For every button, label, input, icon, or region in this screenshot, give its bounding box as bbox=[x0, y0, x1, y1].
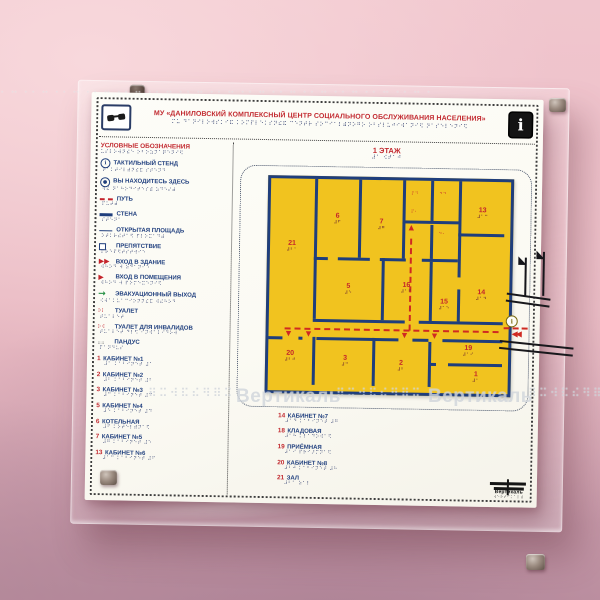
wall bbox=[448, 363, 502, 367]
plan-room-label: 5⠼⠑ bbox=[344, 283, 352, 296]
plan-room-label: 14⠼⠁⠙ bbox=[475, 289, 486, 302]
legend-label: ТАКТИЛЬНЫЙ СТЕНД bbox=[113, 160, 178, 168]
legend-braille: ⠞⠁⠅⠞⠊⠇⠾⠝⠮⠯ ⠎⠞⠑⠝⠙ bbox=[102, 168, 224, 176]
cell-braille-mark: ⠙⠂ bbox=[439, 233, 446, 238]
you-are-here-icon: ● bbox=[100, 177, 110, 187]
legend-braille: ⠪⠺⠁⠅⠥⠁⠉⠊⠕⠝⠝⠮⠯ ⠺⠮⠓⠕⠙ bbox=[100, 299, 222, 307]
floor-plan-region: 1 ЭТАЖ ⠼⠁ ⠪⠞⠁⠚ ▲ ▼ ▼ ▼ ▼ 21⠼⠃⠁20⠼⠃⠚6⠼⠋7⠼… bbox=[233, 143, 535, 500]
legend-item: ⠗⠇ТУАЛЕТ⠞⠥⠁⠇⠑⠞ bbox=[98, 308, 222, 323]
legend-braille: ⠎⠞⠑⠝⠁ bbox=[101, 218, 223, 226]
plan-room-label: 16⠼⠁⠋ bbox=[401, 282, 412, 295]
wall bbox=[358, 180, 362, 258]
plan-room-label: 13⠼⠁⠉ bbox=[477, 207, 488, 220]
room-number: 1 bbox=[97, 355, 101, 362]
obstacle-icon bbox=[99, 243, 113, 250]
wall bbox=[412, 339, 428, 342]
wall bbox=[419, 321, 503, 325]
wall bbox=[372, 338, 376, 386]
maker-logo-braille: ⠺⠑⠗⠞⠊⠅⠁⠇⠾ bbox=[483, 495, 535, 501]
legend-label: ПУТЬ bbox=[117, 196, 133, 203]
rooms-bottom-list: 14КАБИНЕТ №7⠼⠁⠙ ⠅⠁⠃⠊⠝⠑⠞ ⠼⠛18КЛАДОВАЯ⠼⠁⠓ … bbox=[277, 409, 490, 491]
room-number: 14 bbox=[278, 412, 285, 419]
plan-room-label: 15⠼⠁⠑ bbox=[438, 298, 449, 311]
plan-room-label: 19⠼⠁⠊ bbox=[463, 345, 474, 358]
route-arrow: ▼ bbox=[286, 330, 292, 337]
maker-logo: Вертикаль ⠺⠑⠗⠞⠊⠅⠁⠇⠾ bbox=[483, 479, 535, 501]
room-list-item: 1КАБИНЕТ №1⠼⠁ ⠅⠁⠃⠊⠝⠑⠞ ⠼⠁ bbox=[97, 355, 221, 370]
legend-braille: ⠞⠥⠁⠇⠑⠞ bbox=[100, 315, 222, 323]
standoff-screw bbox=[100, 470, 117, 485]
wall bbox=[429, 262, 433, 321]
legend-label: ВЫ НАХОДИТЕСЬ ЗДЕСЬ bbox=[113, 179, 189, 187]
legend-item: ОТКРЫТАЯ ПЛОЩАДЬ⠕⠞⠅⠗⠮⠞⠁⠫ ⠏⠇⠕⠭⠁⠙⠾ bbox=[99, 227, 223, 242]
wall bbox=[314, 257, 328, 260]
wall bbox=[313, 319, 405, 324]
floor-plan: ▲ ▼ ▼ ▼ ▼ 21⠼⠃⠁20⠼⠃⠚6⠼⠋7⠼⠛13⠼⠁⠉5⠼⠑16⠼⠁⠋1… bbox=[264, 175, 514, 397]
legend-item: iТАКТИЛЬНЫЙ СТЕНД⠞⠁⠅⠞⠊⠇⠾⠝⠮⠯ ⠎⠞⠑⠝⠙ bbox=[100, 158, 224, 176]
wall bbox=[381, 258, 385, 320]
standoff-screw bbox=[549, 98, 566, 112]
wall bbox=[298, 337, 302, 340]
legend-column: УСЛОВНЫЕ ОБОЗНАЧЕНИЯ ⠥⠎⠇⠕⠺⠝⠮⠑ ⠕⠃⠕⠵⠝⠁⠟⠑⠝⠊… bbox=[95, 142, 225, 465]
room-list-item: 19ПРИЁМНАЯ⠼⠁⠊ ⠏⠗⠊⠜⠍⠝⠁⠫ bbox=[277, 443, 489, 460]
room-list-item: 20КАБИНЕТ №8⠼⠃⠚ ⠅⠁⠃⠊⠝⠑⠞ ⠼⠓ bbox=[277, 459, 489, 476]
wall bbox=[316, 337, 398, 341]
room-list-item: 6КОТЕЛЬНАЯ⠼⠋ ⠅⠕⠞⠑⠇⠾⠝⠁⠫ bbox=[96, 418, 220, 433]
room-number: 7 bbox=[96, 434, 100, 441]
emergency-exit-icon: → bbox=[98, 290, 112, 299]
cell-braille-mark: ⠏⠂ bbox=[411, 210, 418, 215]
cell-braille-mark: ⠙⠙ bbox=[439, 193, 446, 198]
plan-room-label: 6⠼⠋ bbox=[334, 213, 342, 226]
signpost-icon bbox=[483, 479, 535, 496]
plan-room-label: 20⠼⠃⠚ bbox=[284, 350, 295, 363]
plan-room-label: 1⠼⠁ bbox=[472, 371, 480, 384]
open-area-line-icon bbox=[99, 230, 113, 231]
wall bbox=[338, 257, 370, 261]
room-braille: ⠼⠁⠉ ⠅⠁⠃⠊⠝⠑⠞ ⠼⠋ bbox=[102, 456, 219, 464]
wall bbox=[268, 336, 282, 339]
wall bbox=[430, 225, 434, 259]
ramp-icon: ⠶⠶ bbox=[97, 340, 111, 346]
info-icon: i bbox=[508, 111, 533, 138]
room-number: 19 bbox=[277, 443, 284, 450]
route-path bbox=[285, 327, 499, 333]
room-number: 3 bbox=[96, 386, 100, 393]
wall bbox=[422, 259, 458, 263]
plan-room-label: 21⠼⠃⠁ bbox=[286, 240, 297, 253]
legend-item: ПУТЬ⠏⠥⠞⠾ bbox=[100, 196, 224, 211]
path-line-icon bbox=[100, 198, 114, 200]
legend-item: СТЕНА⠎⠞⠑⠝⠁ bbox=[99, 211, 223, 226]
wall-line-icon bbox=[100, 213, 114, 216]
legend-item: ▶▶ВХОД В ЗДАНИЕ⠺⠓⠕⠙ ⠺ ⠵⠙⠁⠝⠊⠑ bbox=[99, 259, 223, 274]
legend-braille: ⠺⠓⠕⠙ ⠺ ⠵⠙⠁⠝⠊⠑ bbox=[101, 266, 223, 274]
room-list-item: 7КАБИНЕТ №5⠼⠛ ⠅⠁⠃⠊⠝⠑⠞ ⠼⠑ bbox=[96, 434, 220, 449]
room-number: 5 bbox=[96, 402, 100, 409]
room-number: 2 bbox=[97, 371, 101, 378]
wall bbox=[312, 337, 316, 385]
route-arrow: ▼ bbox=[432, 333, 438, 340]
wall bbox=[457, 289, 461, 321]
room-braille: ⠼⠑ ⠅⠁⠃⠊⠝⠑⠞ ⠼⠙ bbox=[103, 409, 220, 417]
room-braille: ⠼⠋ ⠅⠕⠞⠑⠇⠾⠝⠁⠫ bbox=[103, 425, 220, 433]
legend-braille: ⠞⠥⠁⠇⠑⠞ ⠙⠇⠫ ⠊⠝⠺⠁⠇⠊⠙⠕⠺ bbox=[99, 330, 221, 338]
wall bbox=[428, 363, 436, 366]
wall bbox=[431, 181, 435, 221]
plan-room-label: 7⠼⠛ bbox=[378, 218, 386, 231]
sign-panel: МУ «ДАНИЛОВСКИЙ КОМПЛЕКСНЫЙ ЦЕНТР СОЦИАЛ… bbox=[85, 92, 544, 508]
legend-braille: ⠏⠥⠞⠾ bbox=[102, 203, 224, 211]
wall bbox=[458, 233, 504, 237]
room-braille: ⠼⠁ ⠅⠁⠃⠊⠝⠑⠞ ⠼⠁ bbox=[104, 362, 221, 370]
room-list-item: 3КАБИНЕТ №3⠼⠉ ⠅⠁⠃⠊⠝⠑⠞ ⠼⠉ bbox=[96, 386, 220, 401]
legend-braille: ⠏⠗⠑⠏⠫⠞⠎⠞⠺⠊⠑ bbox=[101, 250, 223, 258]
legend-title-braille: ⠥⠎⠇⠕⠺⠝⠮⠑ ⠕⠃⠕⠵⠝⠁⠟⠑⠝⠊⠫ bbox=[101, 149, 225, 158]
sign-assembly: МУ «ДАНИЛОВСКИЙ КОМПЛЕКСНЫЙ ЦЕНТР СОЦИАЛ… bbox=[70, 80, 570, 533]
legend-item: ⠗⠺ТУАЛЕТ ДЛЯ ИНВАЛИДОВ⠞⠥⠁⠇⠑⠞ ⠙⠇⠫ ⠊⠝⠺⠁⠇⠊⠙… bbox=[97, 323, 221, 338]
legend-braille: ⠺⠮ ⠝⠁⠓⠕⠙⠊⠞⠑⠎⠾ ⠵⠙⠑⠎⠾ bbox=[102, 187, 224, 195]
legend-label: ТУАЛЕТ bbox=[115, 308, 138, 315]
cell-braille-mark: ⠏⠙ bbox=[411, 192, 418, 197]
room-list-item: 21ЗАЛ⠼⠃⠁ ⠵⠁⠇ bbox=[277, 475, 489, 492]
tactile-stand-icon: i bbox=[100, 158, 110, 168]
legend-item: ▶ВХОД В ПОМЕЩЕНИЯ⠺⠓⠕⠙ ⠺ ⠏⠕⠍⠑⠭⠑⠝⠊⠫ bbox=[98, 274, 222, 289]
entrance-arrow: ◀◀ bbox=[511, 329, 519, 338]
room-list-item: 18КЛАДОВАЯ⠼⠁⠓ ⠅⠇⠁⠙⠕⠺⠁⠫ bbox=[278, 428, 490, 445]
toilet-icon: ⠗⠇ bbox=[98, 308, 112, 314]
room-list-item: 14КАБИНЕТ №7⠼⠁⠙ ⠅⠁⠃⠊⠝⠑⠞ ⠼⠛ bbox=[278, 412, 490, 429]
wall bbox=[442, 339, 502, 343]
legend-item: ⠶⠶ПАНДУС⠏⠁⠝⠙⠥⠎ bbox=[97, 339, 221, 354]
wall bbox=[458, 181, 463, 277]
route-arrow: ▼ bbox=[402, 332, 408, 339]
plan-room-label: 2⠼⠃ bbox=[397, 360, 405, 373]
room-number: 6 bbox=[96, 418, 100, 425]
wall bbox=[313, 179, 318, 319]
legend-label: ЭВАКУАЦИОННЫЙ ВЫХОД bbox=[115, 292, 196, 300]
sign-header: МУ «ДАНИЛОВСКИЙ КОМПЛЕКСНЫЙ ЦЕНТР СОЦИАЛ… bbox=[101, 101, 533, 141]
room-list-item: 13КАБИНЕТ №6⠼⠁⠉ ⠅⠁⠃⠊⠝⠑⠞ ⠼⠋ bbox=[95, 449, 219, 464]
room-list-item: 2КАБИНЕТ №2⠼⠃ ⠅⠁⠃⠊⠝⠑⠞ ⠼⠃ bbox=[97, 371, 221, 386]
plan-room-label: 3⠼⠉ bbox=[341, 355, 349, 368]
route-arrow: ▲ bbox=[409, 225, 415, 232]
legend-braille: ⠺⠓⠕⠙ ⠺ ⠏⠕⠍⠑⠭⠑⠝⠊⠫ bbox=[100, 281, 222, 289]
route-arrow: ▼ bbox=[306, 331, 312, 338]
glasses-icon bbox=[101, 104, 131, 131]
room-braille: ⠼⠉ ⠅⠁⠃⠊⠝⠑⠞ ⠼⠉ bbox=[103, 394, 220, 402]
legend-braille: ⠕⠞⠅⠗⠮⠞⠁⠫ ⠏⠇⠕⠭⠁⠙⠾ bbox=[101, 234, 223, 242]
standoff-screw bbox=[526, 554, 545, 570]
legend-item: →ЭВАКУАЦИОННЫЙ ВЫХОД⠪⠺⠁⠅⠥⠁⠉⠊⠕⠝⠝⠮⠯ ⠺⠮⠓⠕⠙ bbox=[98, 290, 222, 307]
legend-item: ●ВЫ НАХОДИТЕСЬ ЗДЕСЬ⠺⠮ ⠝⠁⠓⠕⠙⠊⠞⠑⠎⠾ ⠵⠙⠑⠎⠾ bbox=[100, 177, 224, 195]
room-braille: ⠼⠛ ⠅⠁⠃⠊⠝⠑⠞ ⠼⠑ bbox=[103, 441, 220, 449]
room-list-item: 5КАБИНЕТ №4⠼⠑ ⠅⠁⠃⠊⠝⠑⠞ ⠼⠙ bbox=[96, 402, 220, 417]
legend-item: ПРЕПЯТСТВИЕ⠏⠗⠑⠏⠫⠞⠎⠞⠺⠊⠑ bbox=[99, 243, 223, 258]
photo-scene: МУ «ДАНИЛОВСКИЙ КОМПЛЕКСНЫЙ ЦЕНТР СОЦИАЛ… bbox=[0, 0, 600, 600]
room-braille: ⠼⠃ ⠅⠁⠃⠊⠝⠑⠞ ⠼⠃ bbox=[104, 378, 221, 386]
room-number: 20 bbox=[277, 459, 284, 466]
legend-braille: ⠏⠁⠝⠙⠥⠎ bbox=[99, 346, 221, 354]
